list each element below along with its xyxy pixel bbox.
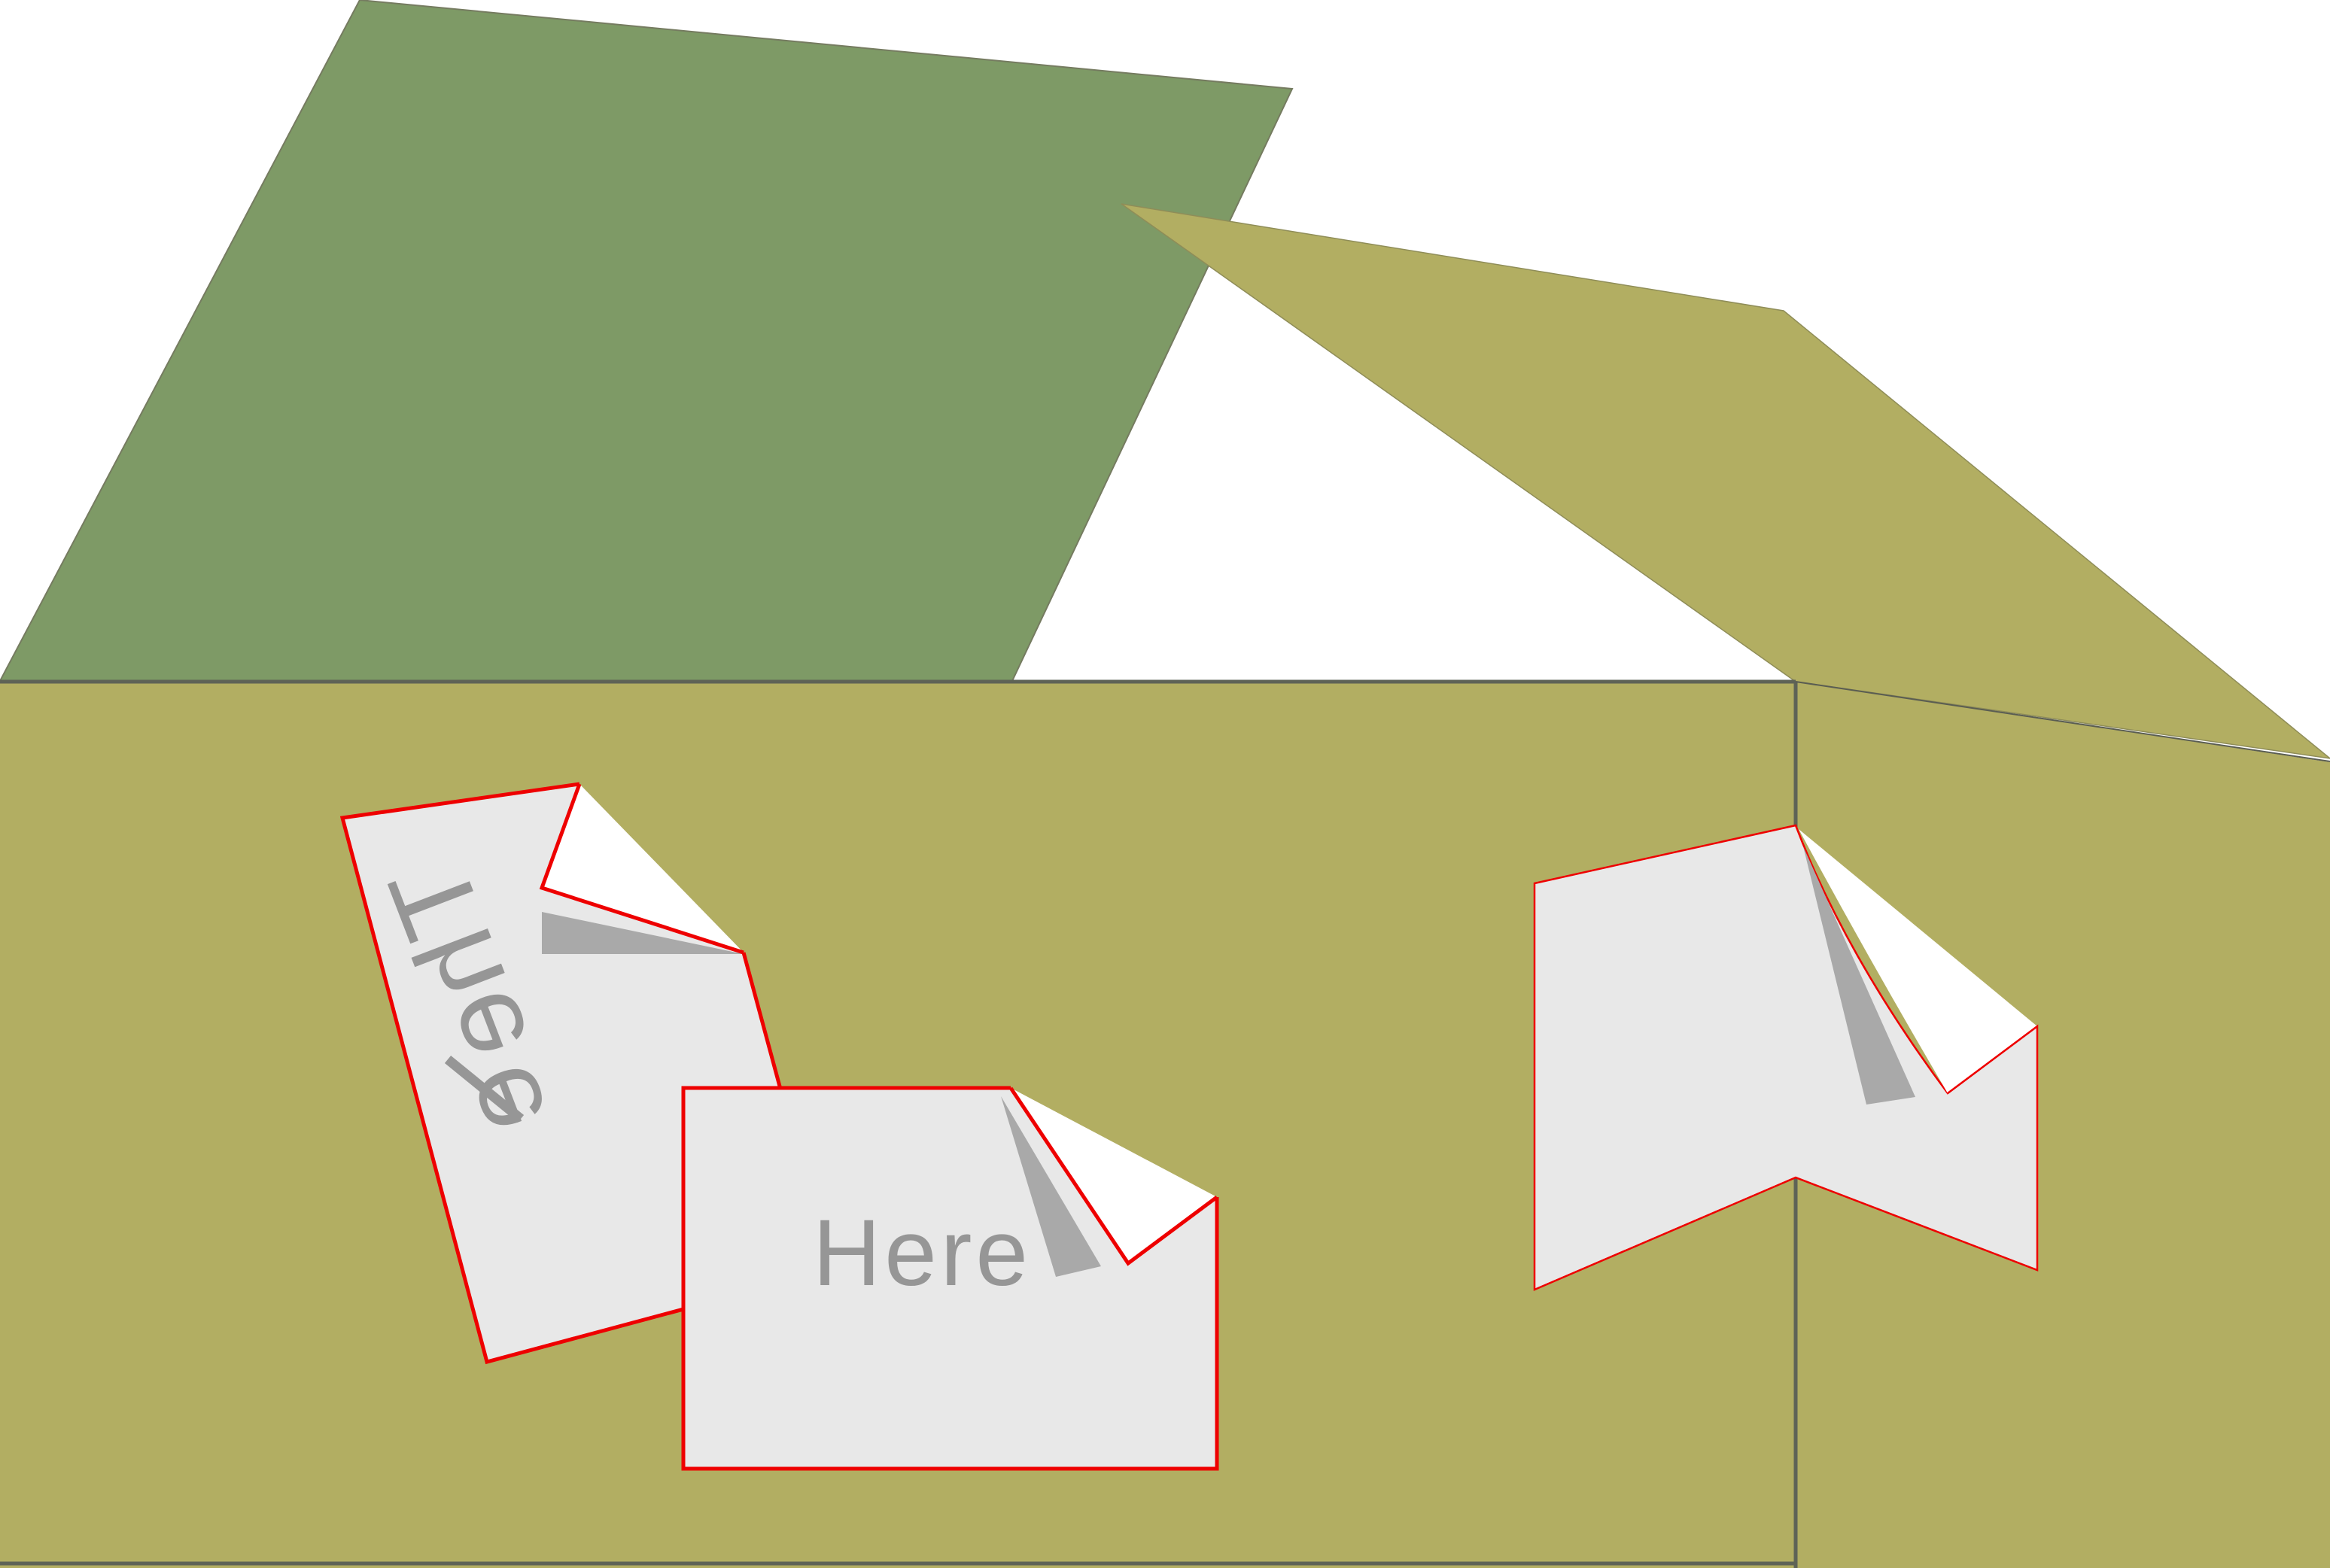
middle-note-text: Here — [813, 1201, 1032, 1305]
abstract-scene-canvas: The e Here — [0, 0, 2330, 1568]
scene-stage: The e Here — [0, 0, 2330, 1568]
